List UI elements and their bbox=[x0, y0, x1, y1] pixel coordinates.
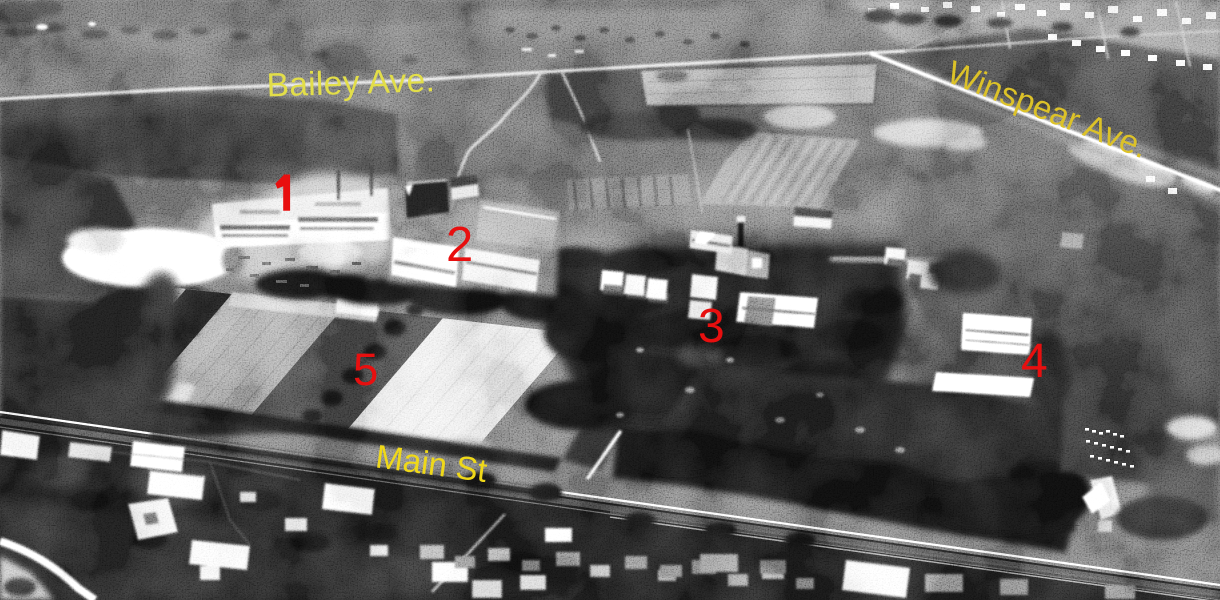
svg-text:4: 4 bbox=[1021, 335, 1048, 388]
svg-text:2: 2 bbox=[446, 218, 473, 272]
svg-text:Bailey Ave.: Bailey Ave. bbox=[266, 62, 436, 104]
svg-text:3: 3 bbox=[698, 300, 725, 353]
svg-text:5: 5 bbox=[353, 344, 378, 395]
